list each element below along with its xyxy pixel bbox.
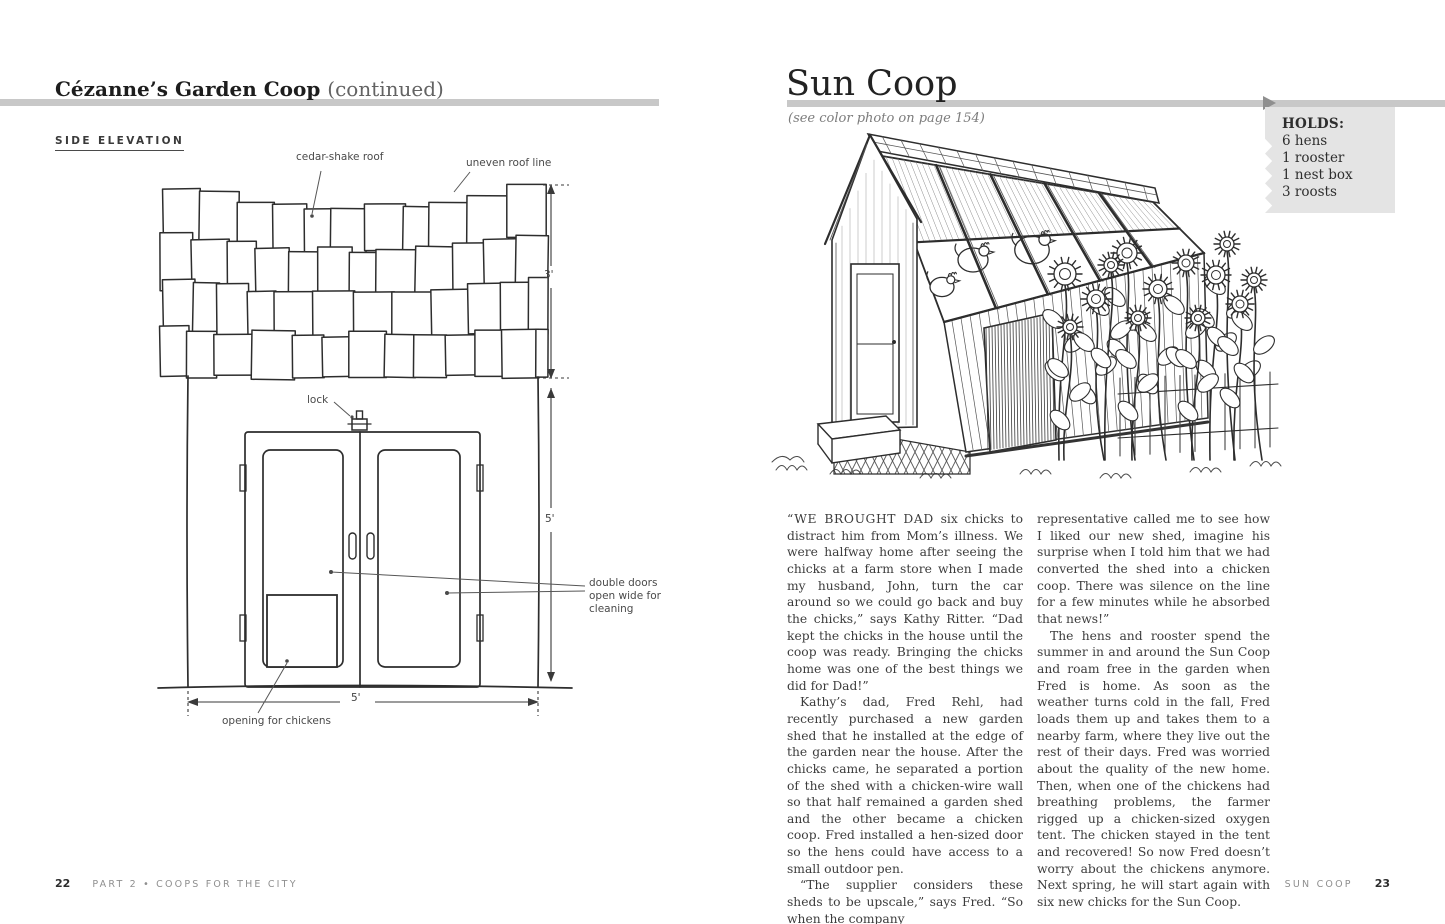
article-column-2: representative called me to see how I li… — [1037, 511, 1270, 911]
label-cedar-shake-roof: cedar-shake roof — [296, 151, 383, 164]
left-running-title: PART 2 • COOPS FOR THE CITY — [92, 879, 297, 890]
left-title-continued: (continued) — [327, 77, 444, 101]
holds-heading: HOLDS: — [1282, 116, 1387, 133]
paragraph: The hens and rooster spend the summer in… — [1037, 628, 1270, 911]
paragraph: “WE BROUGHT DAD six chicks to distract h… — [787, 511, 1023, 694]
holds-item: 6 hens — [1282, 133, 1387, 150]
label-opening-for-chickens: opening for chickens — [222, 715, 331, 728]
label-lock: lock — [307, 394, 328, 407]
dim-roof-height: 3' — [544, 269, 554, 281]
paragraph-text: six chicks to distract him from Mom’s il… — [787, 512, 1023, 693]
right-running-title: SUN COOP — [1285, 879, 1353, 890]
label-double-doors: double doors open wide for cleaning — [589, 577, 661, 616]
lead-in-caps: “WE BROUGHT DAD — [787, 512, 934, 526]
paragraph: representative called me to see how I li… — [1037, 511, 1270, 628]
holds-item: 3 roosts — [1282, 184, 1387, 201]
left-title-text: Cézanne’s Garden Coop — [55, 77, 320, 101]
sun-coop-illustration — [770, 122, 1290, 497]
left-footer: 22 PART 2 • COOPS FOR THE CITY — [55, 877, 298, 890]
right-page-number: 23 — [1375, 877, 1390, 890]
paragraph: “The supplier considers these sheds to b… — [787, 877, 1023, 924]
book-spread: Cézanne’s Garden Coop (continued) SIDE E… — [0, 0, 1445, 924]
left-page-number: 22 — [55, 877, 70, 890]
label-uneven-roof-line: uneven roof line — [466, 157, 551, 170]
holds-item: 1 rooster — [1282, 150, 1387, 167]
side-elevation-drawing — [140, 140, 680, 752]
dim-door-height: 5' — [545, 513, 555, 525]
right-footer: SUN COOP 23 — [1285, 877, 1390, 890]
left-page-title: Cézanne’s Garden Coop (continued) — [55, 77, 444, 101]
holds-item: 1 nest box — [1282, 167, 1387, 184]
dim-width: 5' — [351, 692, 361, 704]
paragraph: Kathy’s dad, Fred Rehl, had recently pur… — [787, 694, 1023, 877]
article-column-1: “WE BROUGHT DAD six chicks to distract h… — [787, 511, 1023, 924]
right-page-title: Sun Coop — [786, 64, 958, 104]
